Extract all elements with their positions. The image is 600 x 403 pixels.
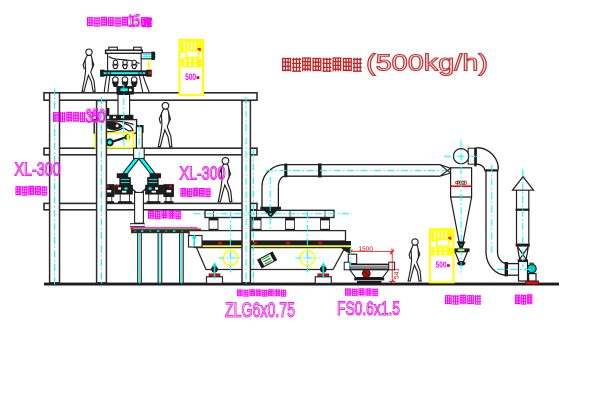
svg-text:XL-300: XL-300 bbox=[180, 162, 226, 183]
svg-text:541: 541 bbox=[394, 267, 401, 279]
svg-text:1.5: 1.5 bbox=[128, 11, 140, 31]
svg-text:350: 350 bbox=[86, 107, 106, 128]
svg-text:FS0.6x1.5: FS0.6x1.5 bbox=[337, 299, 400, 320]
svg-text:1500: 1500 bbox=[359, 246, 374, 253]
svg-text:XL-300: XL-300 bbox=[15, 159, 61, 180]
svg-text:ZLG6x0.75: ZLG6x0.75 bbox=[225, 299, 295, 322]
svg-text:(500kg/h): (500kg/h) bbox=[366, 50, 488, 76]
